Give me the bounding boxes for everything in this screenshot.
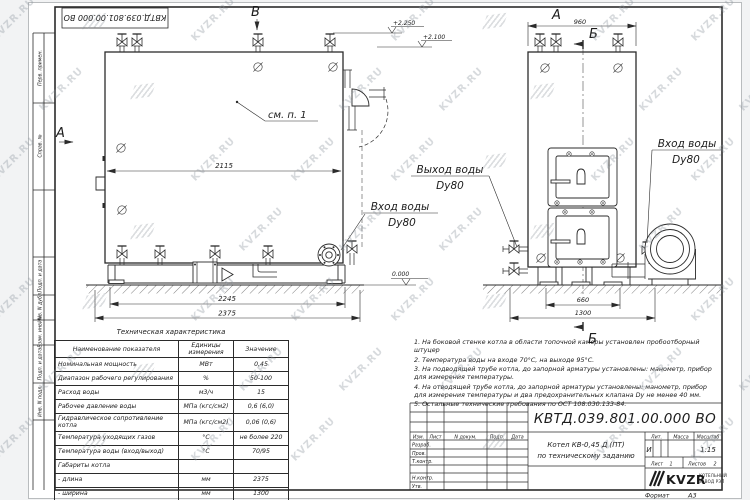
tb-row-utv: Утв. [412,484,422,490]
front-view [96,34,388,284]
param-units: МПа (кгс/см2) [179,414,234,431]
tb-sheet-num: 1 [669,462,672,468]
frame-side-label: Справ. № [38,134,44,157]
tb-row-prov: Пров. [412,451,426,457]
param-units: % [179,372,234,386]
tb-row-nkontr: Н.контр. [412,476,433,482]
inlet-flange-icon [318,244,340,266]
table-row: Расход водым3/ч15 [55,386,289,400]
tb-scale-value: 1:15 [700,446,716,454]
tech-characteristics: Техническая характеристика Наименование … [54,328,288,500]
param-units: МВт [179,358,234,372]
table-row: Габариты котла [55,459,289,473]
tb-sheet-label: Лист [650,462,663,468]
tb-row-razrab: Разраб. [412,443,431,449]
note-item: 2. Температура воды на входе 70°С, на вы… [414,356,719,364]
furnace-door [548,148,617,206]
blower-fan [612,224,696,285]
side-view [503,34,696,298]
table-row: Рабочее давление водыМПа (кгс/см2)0,6 (6… [55,400,289,414]
param-value: 70/95 [234,445,289,459]
dimension-label: 2115 [215,162,233,170]
param-name: Температура уходящих газов [55,431,179,445]
format-value: А3 [687,492,697,500]
param-name: - ширина [55,487,179,500]
section-label-b-top: Б [589,27,598,42]
tech-table-body: Номинальная мощностьМВт0,45Диапазон рабо… [55,358,289,500]
table-row: - ширинамм1300 [55,487,289,500]
product-name: по техническому заданию [537,452,634,460]
param-units [179,459,234,473]
frame-side-label: Инв. N подл. [38,385,44,417]
top-stamp-number: КВТД.039.801.00.000 ВО [64,13,167,22]
tb-col-podp: Подп. [490,435,505,441]
weld-mark-icon [116,62,337,214]
param-name: Диапазон рабочего регулирования [55,372,179,386]
ash-door [548,208,617,267]
note-item: 3. На подводящей трубе котла, до запорно… [414,365,719,382]
dimension-label: 2375 [218,310,236,318]
param-name: - длина [55,473,179,487]
tb-col-list: Лист [428,435,441,441]
dimension-label: 960 [574,18,586,26]
param-value: 0,45 [234,358,289,372]
table-row: Номинальная мощностьМВт0,45 [55,358,289,372]
tb-col-data: Дата [510,435,523,441]
param-value: 0,6 (6,0) [234,400,289,414]
param-units: °С [179,431,234,445]
see-note-ref: см. п. 1 [268,110,307,121]
format-label: Формат [645,493,670,500]
param-name: Расход воды [55,386,179,400]
tb-lit-label: Лит. [650,435,662,441]
elevation-label: +2.100 [423,34,445,41]
tech-col-header: Наименование показателя [55,341,179,358]
dimension-label: 1300 [575,309,592,317]
company-logo-icon [650,471,664,486]
dimension-label: 2245 [218,295,236,303]
table-row: Температура уходящих газов°Сне более 220 [55,431,289,445]
param-units: МПа (кгс/см2) [179,400,234,414]
tb-scale-label: Масштаб [697,435,720,441]
param-value: не более 220 [234,431,289,445]
inlet-label: Вход воды [371,201,430,213]
product-name: Котел КВ-0,45 Д (ПТ) [547,441,624,449]
param-name: Температура воды (вход/выход) [55,445,179,459]
param-units: м3/ч [179,386,234,400]
param-units: °С [179,445,234,459]
table-row: Диапазон рабочего регулирования%50-100 [55,372,289,386]
param-value: 2375 [234,473,289,487]
company-subtitle: ЗАВОД РЭП [699,479,725,484]
tb-col-izm: Изм. [413,435,424,441]
param-value: 0,06 (0,6) [234,414,289,431]
table-row: - длинамм2375 [55,473,289,487]
param-value: 15 [234,386,289,400]
section-label-v: В [251,5,260,20]
elevation-label: 0.000 [392,271,409,278]
tb-sheets-num: 2 [713,462,716,468]
view-label-a: А [551,8,561,23]
drawing-stage: Перв. примен. Справ. № Подп. и дата Инв.… [0,0,750,500]
frame-side-label: Взам. инв. N [38,316,44,348]
param-name: Номинальная мощность [55,358,179,372]
company-subtitle: КОТЕЛЬНЫЙ [699,473,727,478]
outlet-label: Выход воды [417,164,484,176]
note-item: 4. На отводящей трубе котла, до запорной… [414,383,719,400]
param-value [234,459,289,473]
tb-lit-value: И [646,446,652,454]
tb-sheets-label: Листов [687,462,706,468]
note-item: 1. На боковой стенке котла в области топ… [414,338,719,355]
frame-side-label: Перв. примен. [38,50,44,86]
table-row: Температура воды (вход/выход)°С70/95 [55,445,289,459]
param-units: мм [179,487,234,500]
doc-number: КВТД.039.801.00.000 ВО [534,411,716,427]
param-value: 50-100 [234,372,289,386]
section-label-a: А [55,126,65,141]
inlet-label-dn: Dy80 [388,217,416,229]
param-name: Гидравлическое сопротивление котла [55,414,179,431]
ground [86,285,721,294]
elevation-label: +2.250 [393,20,415,27]
tech-table-title: Техническая характеристика [54,328,288,337]
tech-table: Наименование показателяЕдиницы измерения… [54,340,289,500]
table-row: Гидравлическое сопротивление котлаМПа (к… [55,414,289,431]
tb-mass-label: Масса [673,435,688,441]
tb-col-ndoc: N докум. [454,435,476,441]
outlet-label-dn: Dy80 [436,180,464,192]
param-name: Рабочее давление воды [55,400,179,414]
tech-col-header: Значение [234,341,289,358]
tb-row-tkontr: Т.контр. [412,459,433,465]
tech-table-head: Наименование показателяЕдиницы измерения… [55,341,289,358]
inlet-label-dn: Dy80 [672,154,700,166]
tech-col-header: Единицы измерения [179,341,234,358]
dimension-label: 660 [577,296,589,304]
title-block-text: Изм. Лист N докум. Подп. Дата Разраб. Пр… [412,411,727,500]
note-item: 5. Остальные технические требования по О… [414,400,719,408]
frame-side-label: Подп. и дата [38,348,44,381]
frame-side-label: Подп. и дата [38,260,44,293]
inlet-label: Вход воды [658,138,717,150]
param-units: мм [179,473,234,487]
notes-list: 1. На боковой стенке котла в области топ… [414,338,719,410]
param-name: Габариты котла [55,459,179,473]
valve-icon [117,34,335,46]
param-value: 1300 [234,487,289,500]
